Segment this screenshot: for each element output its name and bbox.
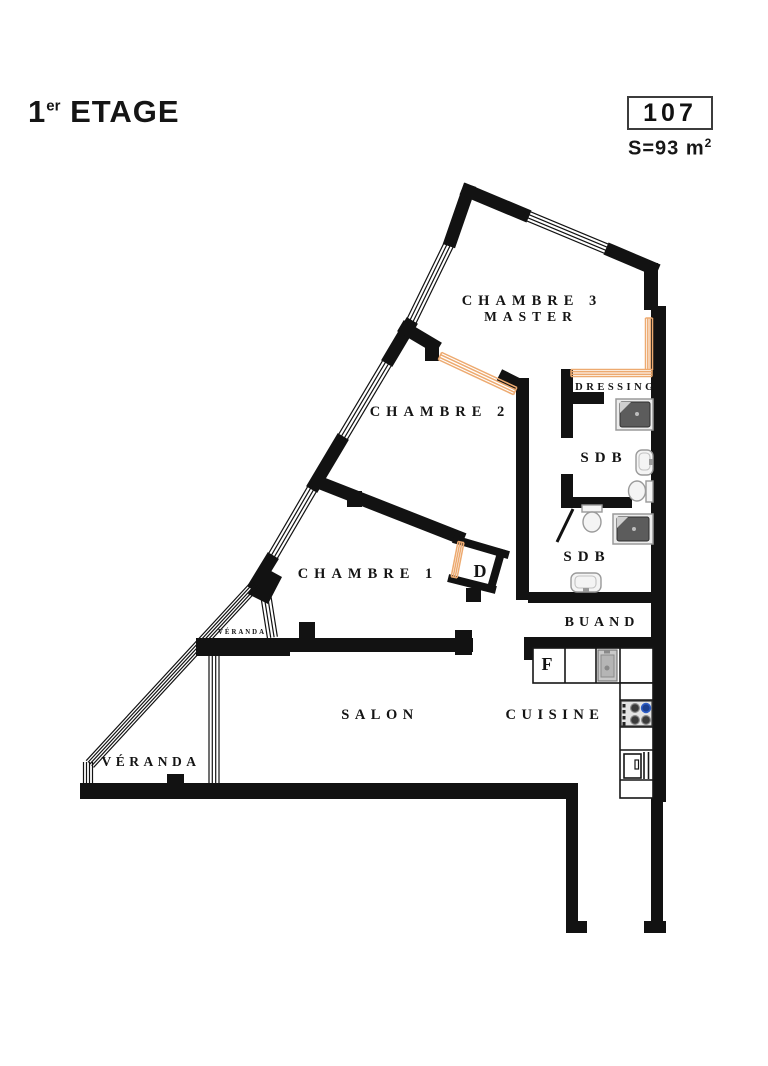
room-label-chambre2: CHAMBRE 2 [370,404,511,420]
room-labels: CHAMBRE 3 MASTER CHAMBRE 2 CHAMBRE 1 DRE… [102,293,657,769]
stove-icon [621,701,652,726]
shower-icon-sdb2 [613,514,653,544]
window-top-right [521,208,614,256]
window-left-2 [335,355,395,445]
toilet-icon-sdb2 [582,505,602,532]
room-label-chambre1: CHAMBRE 1 [298,566,439,582]
sink-icon-sdb1 [636,450,653,475]
room-label-sdb1: SDB [580,450,627,466]
interior-walls [196,329,656,660]
floor-plan-page: { "header": { "floor_number": "1", "floo… [0,0,768,1066]
floor-plan-svg: CHAMBRE 3 MASTER CHAMBRE 2 CHAMBRE 1 DRE… [0,0,768,1066]
room-label-salon: SALON [341,707,418,723]
room-label-sdb2: SDB [563,549,610,565]
veranda-outer-glazing [86,581,259,768]
room-label-chambre3: CHAMBRE 3 [462,293,603,309]
veranda-glazing-stub [84,762,93,784]
room-label-dressing: DRESSING [575,382,657,393]
closet-door-degagement [451,541,464,577]
room-label-master: MASTER [484,309,578,324]
veranda-inner-glazing [209,654,219,784]
window-left-3 [265,481,320,564]
kitchen-sink-icon [598,650,617,681]
closet-dressing-horizontal [571,370,652,377]
room-label-veranda-large: VÉRANDA [102,754,201,769]
appliance-label-fridge: F [542,654,553,674]
window-left-1 [404,237,457,329]
room-label-buand: BUAND [565,615,640,630]
blue-burner [642,704,651,713]
room-label-cuisine: CUISINE [506,707,605,723]
room-label-veranda-small: VÉRANDA [218,628,266,636]
shower-icon-sdb1 [616,399,653,430]
sink-icon-sdb2 [571,573,601,592]
door-leaf-sdb2 [557,509,573,542]
room-label-degagement: D [474,561,487,581]
toilet-icon-sdb1 [629,481,654,502]
